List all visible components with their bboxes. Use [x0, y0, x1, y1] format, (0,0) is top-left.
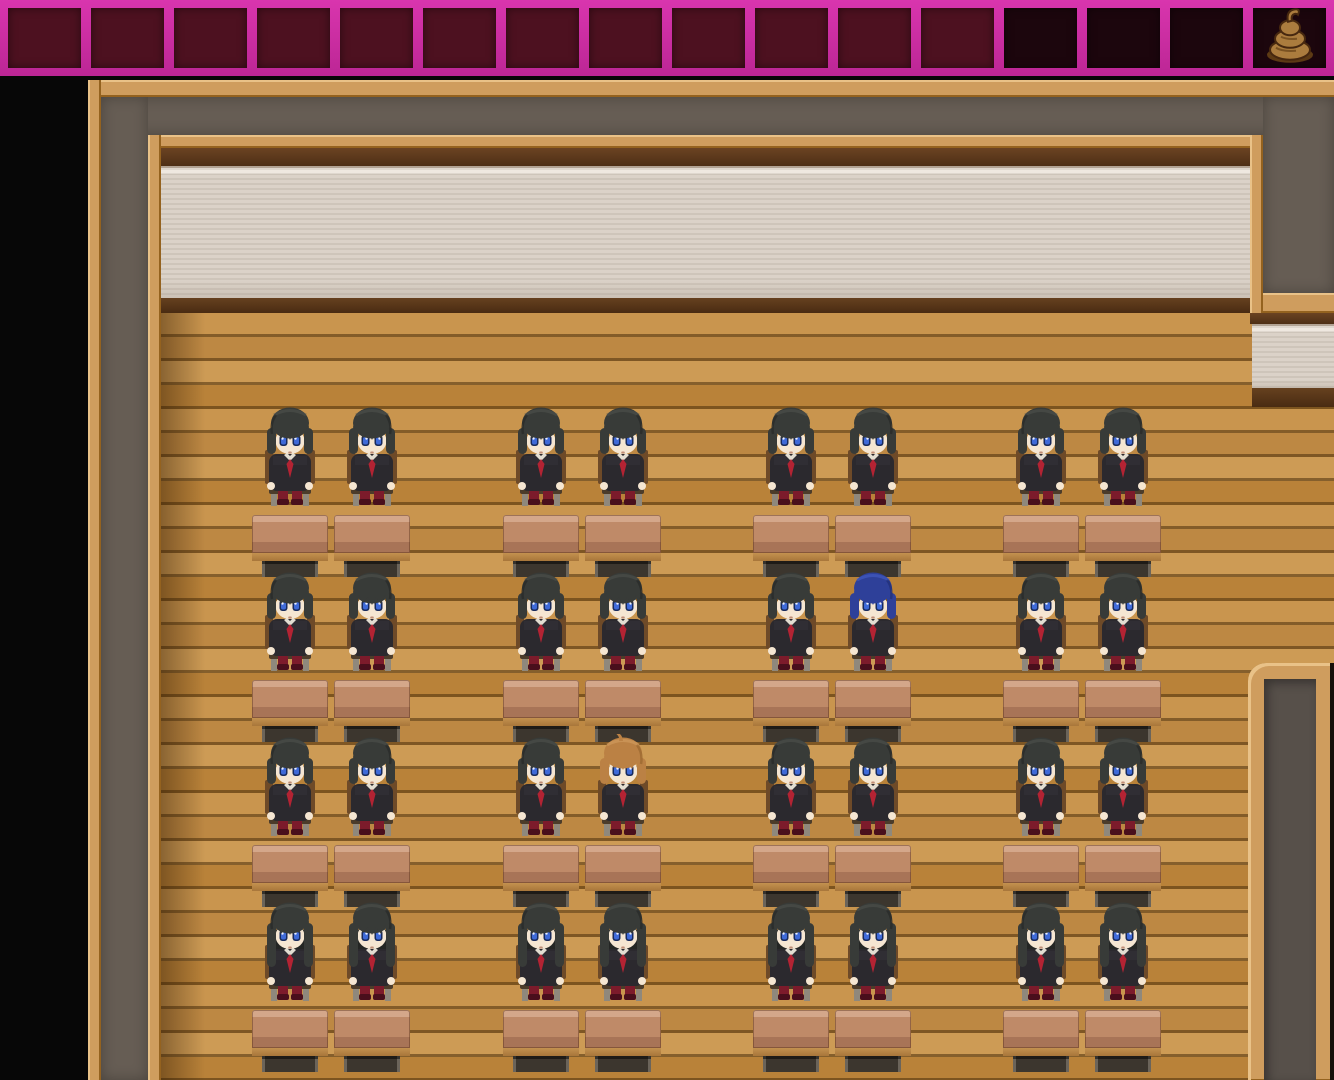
tile-cell: [1170, 8, 1243, 68]
student-npc[interactable]: [761, 404, 821, 508]
tile-cell: [91, 8, 164, 68]
tile-cell: [8, 8, 81, 68]
game-viewport: [0, 0, 1334, 1080]
tile-cell: [755, 8, 828, 68]
tile-cell: [174, 8, 247, 68]
tile-cell: [423, 8, 496, 68]
tile-cell: [921, 8, 994, 68]
tile-cell: [838, 8, 911, 68]
tile-cell: [1004, 8, 1077, 68]
student-npc[interactable]: [593, 569, 653, 673]
student-npc[interactable]: [843, 404, 903, 508]
student-npc[interactable]: [511, 734, 571, 838]
player-character[interactable]: [593, 734, 653, 838]
tile-cell: [672, 8, 745, 68]
student-npc[interactable]: [260, 404, 320, 508]
student-npc[interactable]: [260, 734, 320, 838]
tile-cell: [340, 8, 413, 68]
student-npc[interactable]: [593, 404, 653, 508]
tile-cell: [1087, 8, 1160, 68]
tile-cell: [506, 8, 579, 68]
student-npc[interactable]: [1093, 899, 1153, 1003]
tile-strip: [0, 0, 1334, 76]
student-npc[interactable]: [843, 899, 903, 1003]
student-npc[interactable]: [1011, 569, 1071, 673]
student-npc-blue-hair[interactable]: [843, 569, 903, 673]
student-npc[interactable]: [761, 734, 821, 838]
student-npc[interactable]: [1093, 734, 1153, 838]
student-npc[interactable]: [511, 899, 571, 1003]
tile-cell: [257, 8, 330, 68]
student-npc[interactable]: [342, 404, 402, 508]
student-npc[interactable]: [1093, 569, 1153, 673]
tile-cell: [589, 8, 662, 68]
student-npc[interactable]: [593, 899, 653, 1003]
student-npc[interactable]: [342, 899, 402, 1003]
student-npc[interactable]: [761, 569, 821, 673]
poop-icon[interactable]: [1262, 6, 1318, 68]
student-npc[interactable]: [1011, 734, 1071, 838]
student-npc[interactable]: [342, 734, 402, 838]
student-npc[interactable]: [1011, 899, 1071, 1003]
student-npc[interactable]: [511, 569, 571, 673]
student-npc[interactable]: [843, 734, 903, 838]
tile-cell: [1253, 8, 1326, 68]
student-npc[interactable]: [342, 569, 402, 673]
student-npc[interactable]: [1011, 404, 1071, 508]
student-npc[interactable]: [260, 569, 320, 673]
students-layer: [0, 0, 1334, 1080]
student-npc[interactable]: [761, 899, 821, 1003]
student-npc[interactable]: [1093, 404, 1153, 508]
student-npc[interactable]: [260, 899, 320, 1003]
student-npc[interactable]: [511, 404, 571, 508]
